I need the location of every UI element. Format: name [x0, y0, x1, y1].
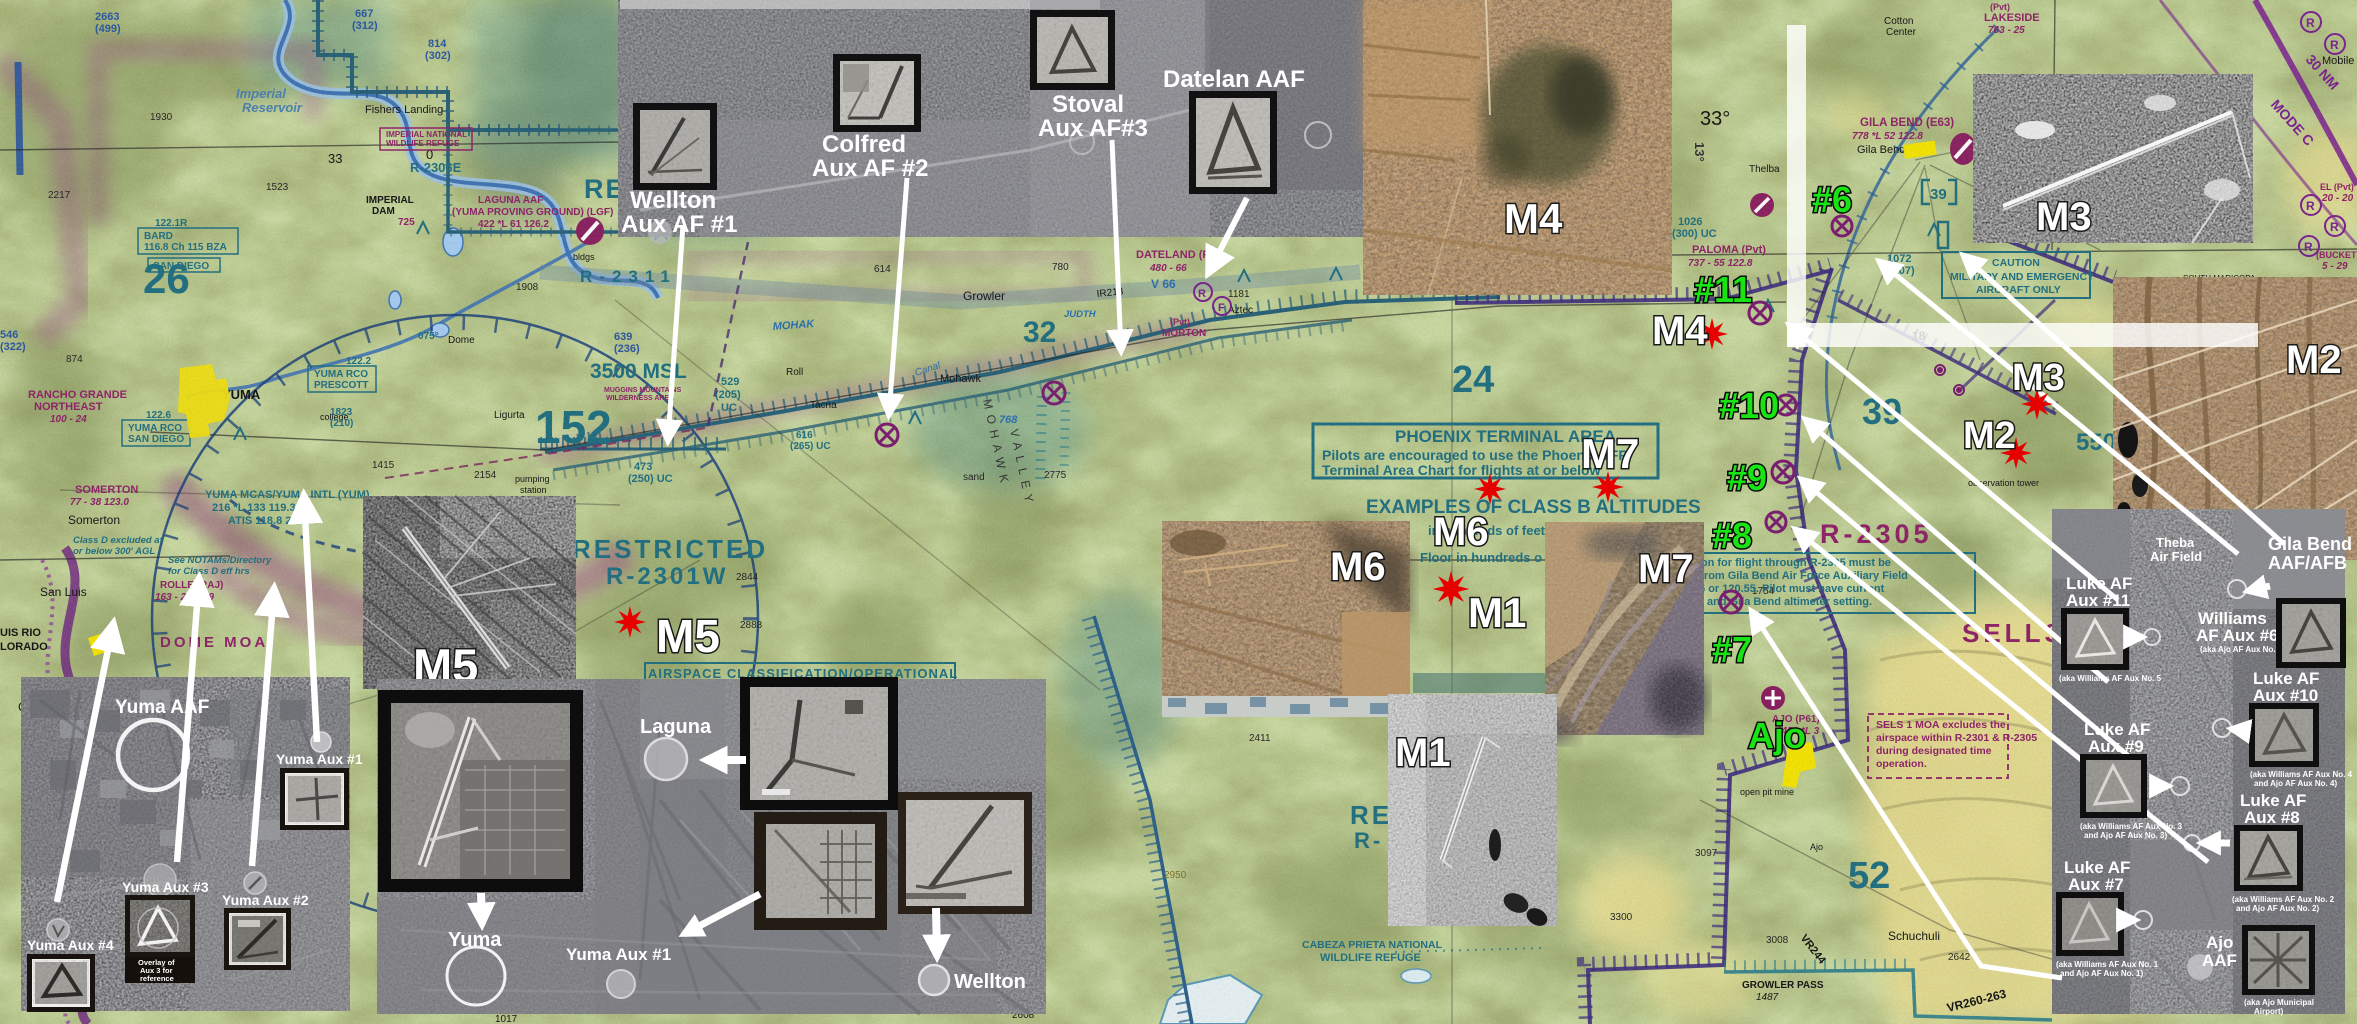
svg-text:M6: M6: [1330, 545, 1386, 589]
svg-text:Aux AF #1: Aux AF #1: [621, 211, 737, 238]
svg-text:Air Field: Air Field: [2150, 549, 2202, 564]
svg-text:and Ajo AF Aux No. 2): and Ajo AF Aux No. 2): [2236, 904, 2319, 913]
svg-text:and Ajo AF Aux No. 3): and Ajo AF Aux No. 3): [2084, 831, 2167, 840]
svg-text:Ajo: Ajo: [2206, 933, 2233, 952]
svg-text:(aka Williams AF Aux No. 3: (aka Williams AF Aux No. 3: [2080, 822, 2183, 831]
svg-text:Yuma: Yuma: [448, 929, 502, 951]
svg-text:AF Aux #6: AF Aux #6: [2196, 626, 2279, 645]
svg-text:Laguna: Laguna: [640, 716, 712, 738]
svg-text:Yuma Aux #3: Yuma Aux #3: [122, 879, 209, 895]
svg-text:Ajo: Ajo: [1748, 715, 1806, 756]
svg-text:(aka Williams AF Aux No. 4: (aka Williams AF Aux No. 4: [2250, 770, 2353, 779]
svg-text:Aux #10: Aux #10: [2253, 686, 2318, 705]
svg-text:and Ajo AF Aux No. 4): and Ajo AF Aux No. 4): [2254, 779, 2337, 788]
svg-text:Aux AF #2: Aux AF #2: [812, 155, 928, 182]
svg-text:M3: M3: [2036, 195, 2092, 239]
svg-text:M1: M1: [1395, 731, 1451, 775]
svg-text:Aux #9: Aux #9: [2088, 737, 2144, 756]
svg-text:and Ajo AF Aux No. 1): and Ajo AF Aux No. 1): [2060, 969, 2143, 978]
svg-text:Aux AF#3: Aux AF#3: [1038, 115, 1148, 142]
svg-text:reference: reference: [140, 974, 174, 983]
svg-text:Wellton: Wellton: [630, 187, 716, 214]
svg-text:AAF: AAF: [2202, 951, 2237, 970]
svg-text:#10: #10: [1719, 385, 1779, 426]
svg-text:Theba: Theba: [2156, 535, 2195, 550]
svg-text:Aux #7: Aux #7: [2068, 875, 2124, 894]
svg-text:M5: M5: [656, 610, 720, 662]
svg-text:Aux #11: Aux #11: [2066, 591, 2130, 610]
svg-text:M4: M4: [1504, 195, 1563, 242]
svg-text:M7: M7: [1638, 547, 1694, 591]
svg-text:#7: #7: [1712, 629, 1752, 670]
svg-text:#8: #8: [1712, 515, 1752, 556]
svg-text:Stoval: Stoval: [1052, 91, 1124, 118]
svg-text:M6: M6: [1433, 510, 1489, 554]
svg-text:Gila Bend: Gila Bend: [2268, 534, 2352, 554]
svg-text:AAF/AFB: AAF/AFB: [2268, 553, 2347, 573]
svg-text:Airport): Airport): [2254, 1007, 2284, 1016]
svg-text:#9: #9: [1727, 457, 1767, 498]
svg-text:Yuma Aux #4: Yuma Aux #4: [27, 937, 114, 953]
svg-text:M7: M7: [1581, 430, 1639, 477]
svg-text:(aka Ajo AF Aux No. 6): (aka Ajo AF Aux No. 6): [2200, 645, 2285, 654]
svg-text:M2: M2: [2286, 338, 2342, 382]
svg-text:(aka Williams AF Aux No. 2: (aka Williams AF Aux No. 2: [2232, 895, 2335, 904]
svg-text:#11: #11: [1694, 269, 1752, 310]
svg-text:Colfred: Colfred: [822, 131, 906, 158]
svg-text:Datelan AAF: Datelan AAF: [1163, 66, 1305, 93]
svg-text:Yuma AAF: Yuma AAF: [115, 697, 209, 718]
svg-text:Wellton: Wellton: [954, 971, 1026, 993]
svg-text:(aka Williams AF Aux No. 1: (aka Williams AF Aux No. 1: [2056, 960, 2159, 969]
svg-text:Yuma Aux #2: Yuma Aux #2: [222, 892, 309, 908]
svg-text:Yuma Aux #1: Yuma Aux #1: [566, 945, 671, 964]
svg-text:M3: M3: [2012, 357, 2065, 399]
svg-text:M4: M4: [1652, 309, 1708, 353]
svg-text:(aka Williams AF Aux No. 5: (aka Williams AF Aux No. 5: [2059, 674, 2162, 683]
svg-text:(aka Ajo Municipal: (aka Ajo Municipal: [2244, 998, 2314, 1007]
svg-text:#6: #6: [1812, 179, 1852, 220]
svg-text:M2: M2: [1963, 415, 2016, 457]
svg-text:Aux #8: Aux #8: [2244, 808, 2300, 827]
svg-text:Yuma Aux #1: Yuma Aux #1: [276, 751, 363, 767]
svg-text:M1: M1: [1468, 589, 1526, 636]
